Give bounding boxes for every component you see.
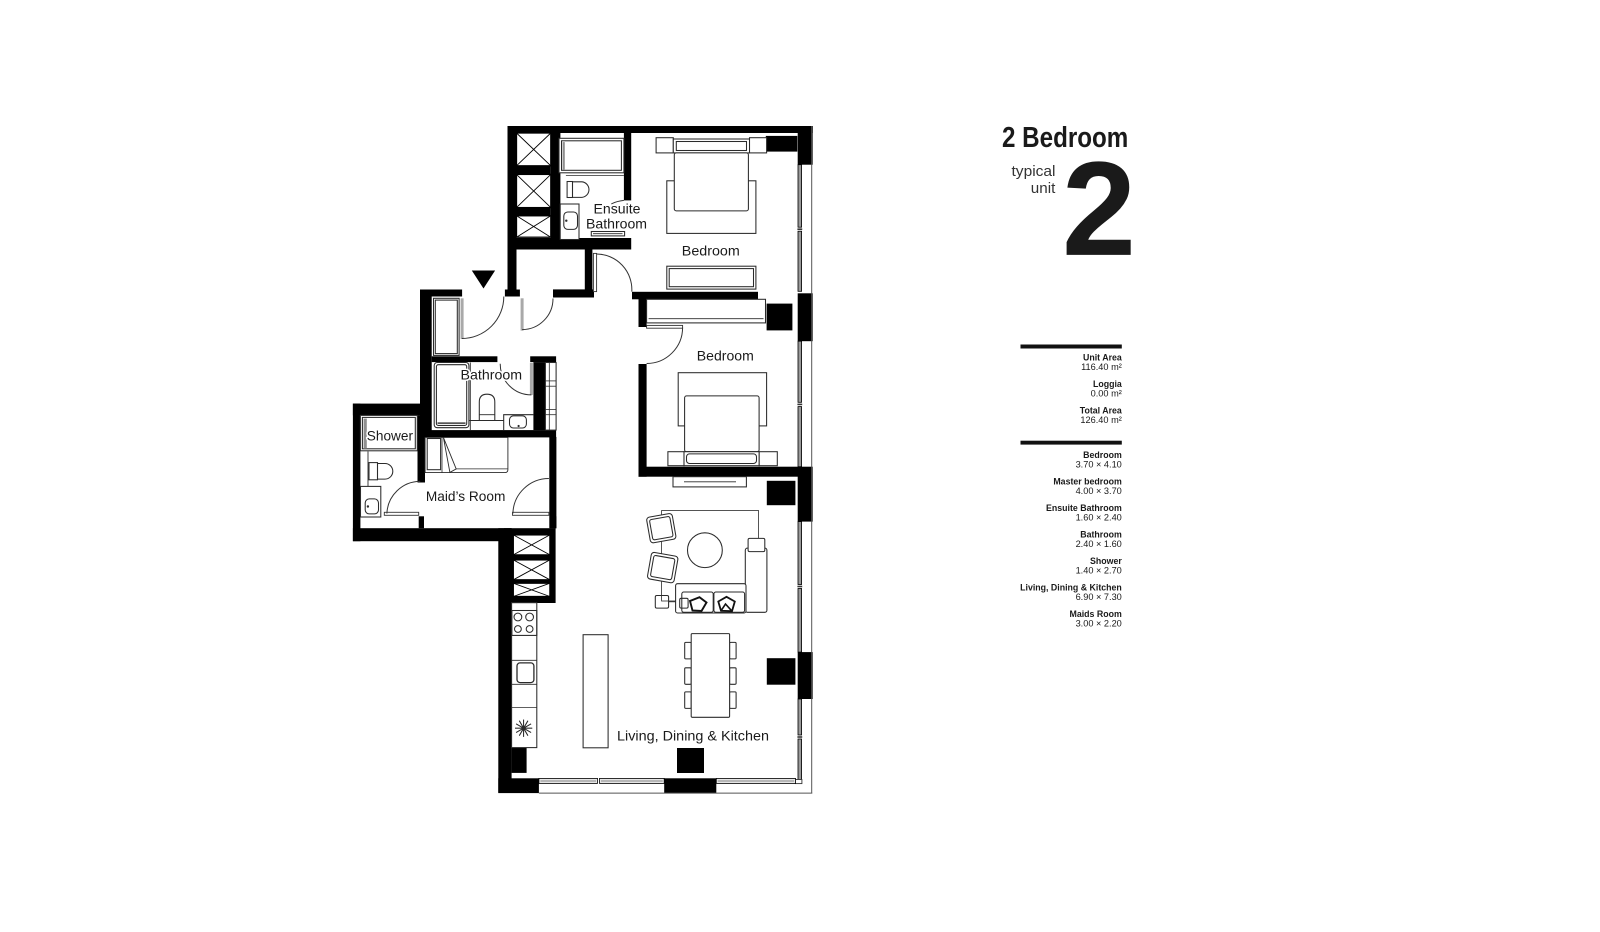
svg-text:Maids Room: Maids Room	[1070, 609, 1122, 619]
svg-text:Ensuite Bathroom: Ensuite Bathroom	[1046, 503, 1122, 513]
svg-text:Bathroom: Bathroom	[1080, 529, 1122, 539]
svg-text:Bedroom: Bedroom	[697, 347, 754, 363]
svg-text:Total Area: Total Area	[1080, 405, 1122, 415]
svg-text:typical: typical	[1012, 164, 1056, 180]
svg-text:Loggia: Loggia	[1093, 379, 1122, 389]
svg-text:Master bedroom: Master bedroom	[1053, 476, 1122, 486]
svg-text:2: 2	[1062, 135, 1136, 284]
svg-text:Living, Dining & Kitchen: Living, Dining & Kitchen	[617, 728, 769, 744]
svg-text:4.00 × 3.70: 4.00 × 3.70	[1076, 486, 1122, 496]
svg-text:Bathroom: Bathroom	[461, 367, 523, 383]
svg-text:6.90 × 7.30: 6.90 × 7.30	[1076, 592, 1122, 602]
svg-text:Living, Dining & Kitchen: Living, Dining & Kitchen	[1020, 582, 1122, 592]
svg-text:Shower: Shower	[367, 428, 414, 444]
svg-text:Ensuite: Ensuite	[594, 201, 641, 217]
svg-text:1.40 × 2.70: 1.40 × 2.70	[1076, 566, 1122, 576]
svg-text:unit: unit	[1031, 181, 1056, 197]
svg-text:2.40 × 1.60: 2.40 × 1.60	[1076, 539, 1122, 549]
svg-text:3.00 × 2.20: 3.00 × 2.20	[1076, 619, 1122, 629]
svg-text:3.70 × 4.10: 3.70 × 4.10	[1076, 460, 1122, 470]
svg-text:1.60 × 2.40: 1.60 × 2.40	[1076, 513, 1122, 523]
svg-text:Maid’s Room: Maid’s Room	[426, 488, 506, 504]
svg-text:Unit Area: Unit Area	[1083, 353, 1122, 363]
svg-text:Bedroom: Bedroom	[682, 242, 740, 258]
svg-text:Shower: Shower	[1090, 556, 1122, 566]
svg-text:0.00 m²: 0.00 m²	[1091, 389, 1122, 399]
svg-text:Bedroom: Bedroom	[1083, 450, 1122, 460]
svg-text:Bathroom: Bathroom	[586, 215, 647, 231]
svg-text:116.40 m²: 116.40 m²	[1081, 362, 1122, 372]
svg-text:126.40 m²: 126.40 m²	[1080, 415, 1121, 425]
